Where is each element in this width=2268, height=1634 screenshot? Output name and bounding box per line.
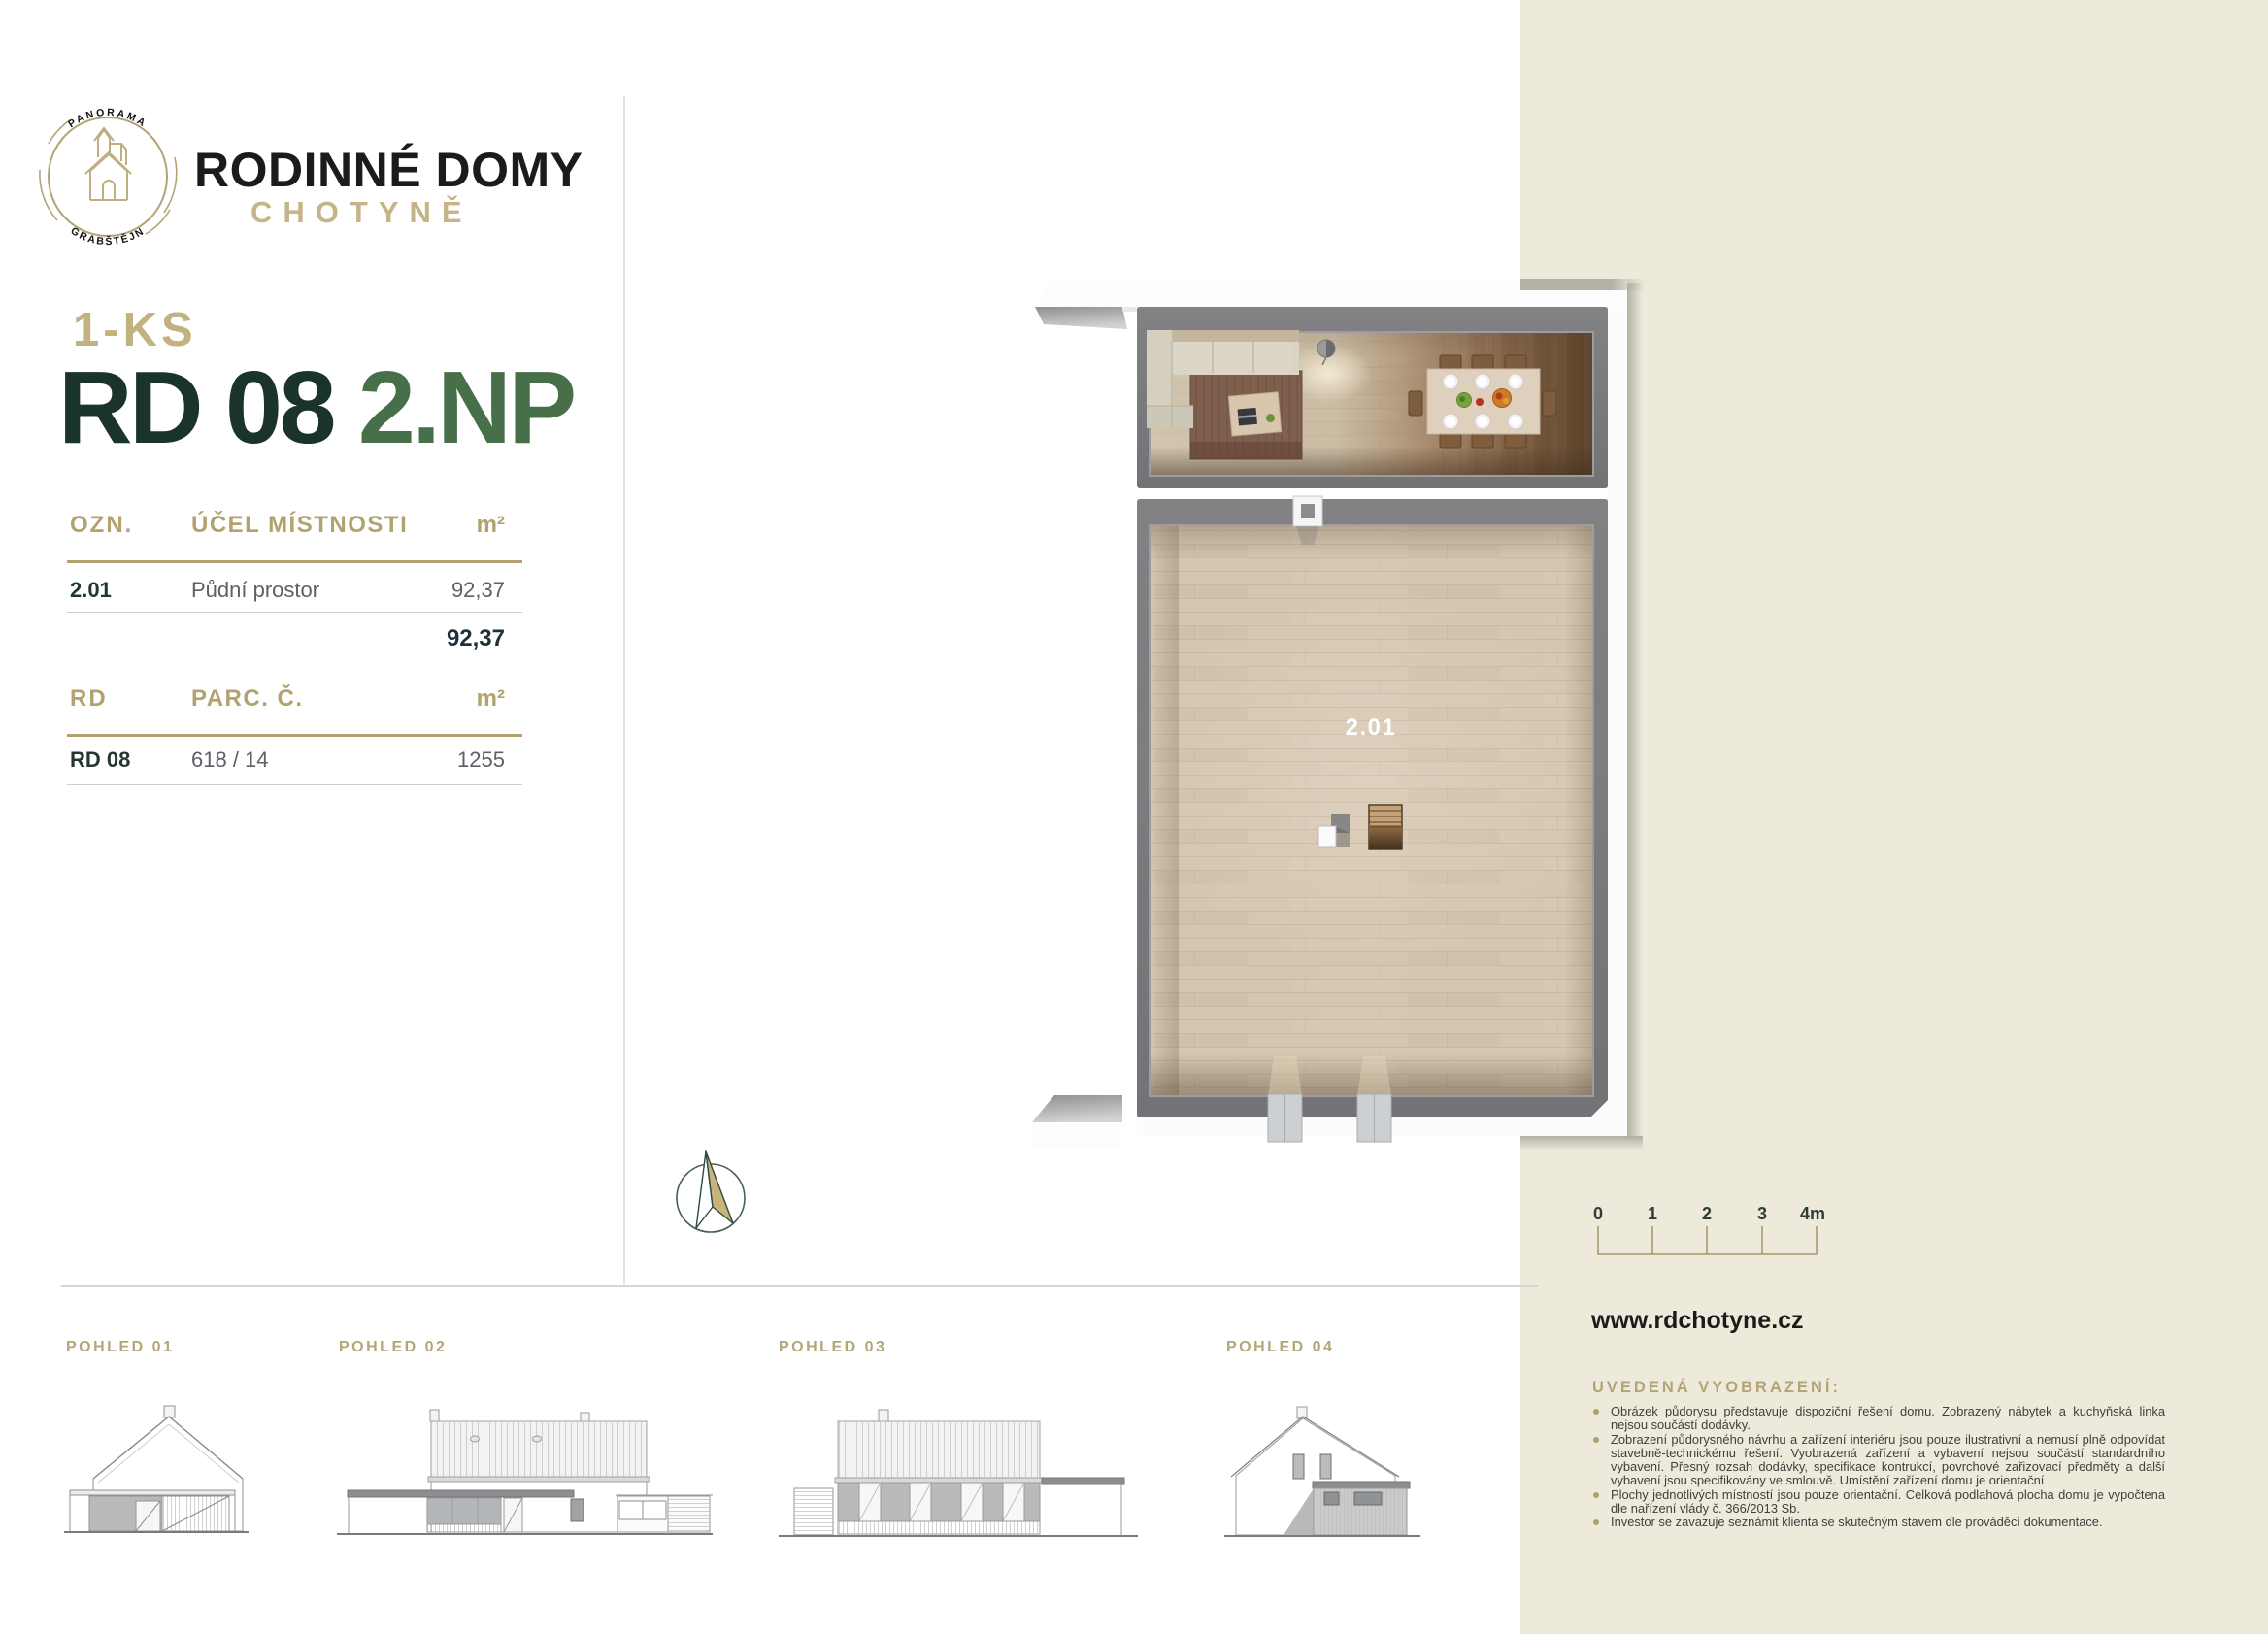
- svg-text:1: 1: [1648, 1204, 1657, 1223]
- svg-text:2: 2: [1702, 1204, 1712, 1223]
- svg-text:4m: 4m: [1800, 1204, 1825, 1223]
- svg-text:PANORAMA: PANORAMA: [66, 107, 150, 130]
- svg-text:3: 3: [1757, 1204, 1767, 1223]
- svg-text:2.01: 2.01: [1346, 715, 1397, 741]
- svg-text:0: 0: [1593, 1204, 1603, 1223]
